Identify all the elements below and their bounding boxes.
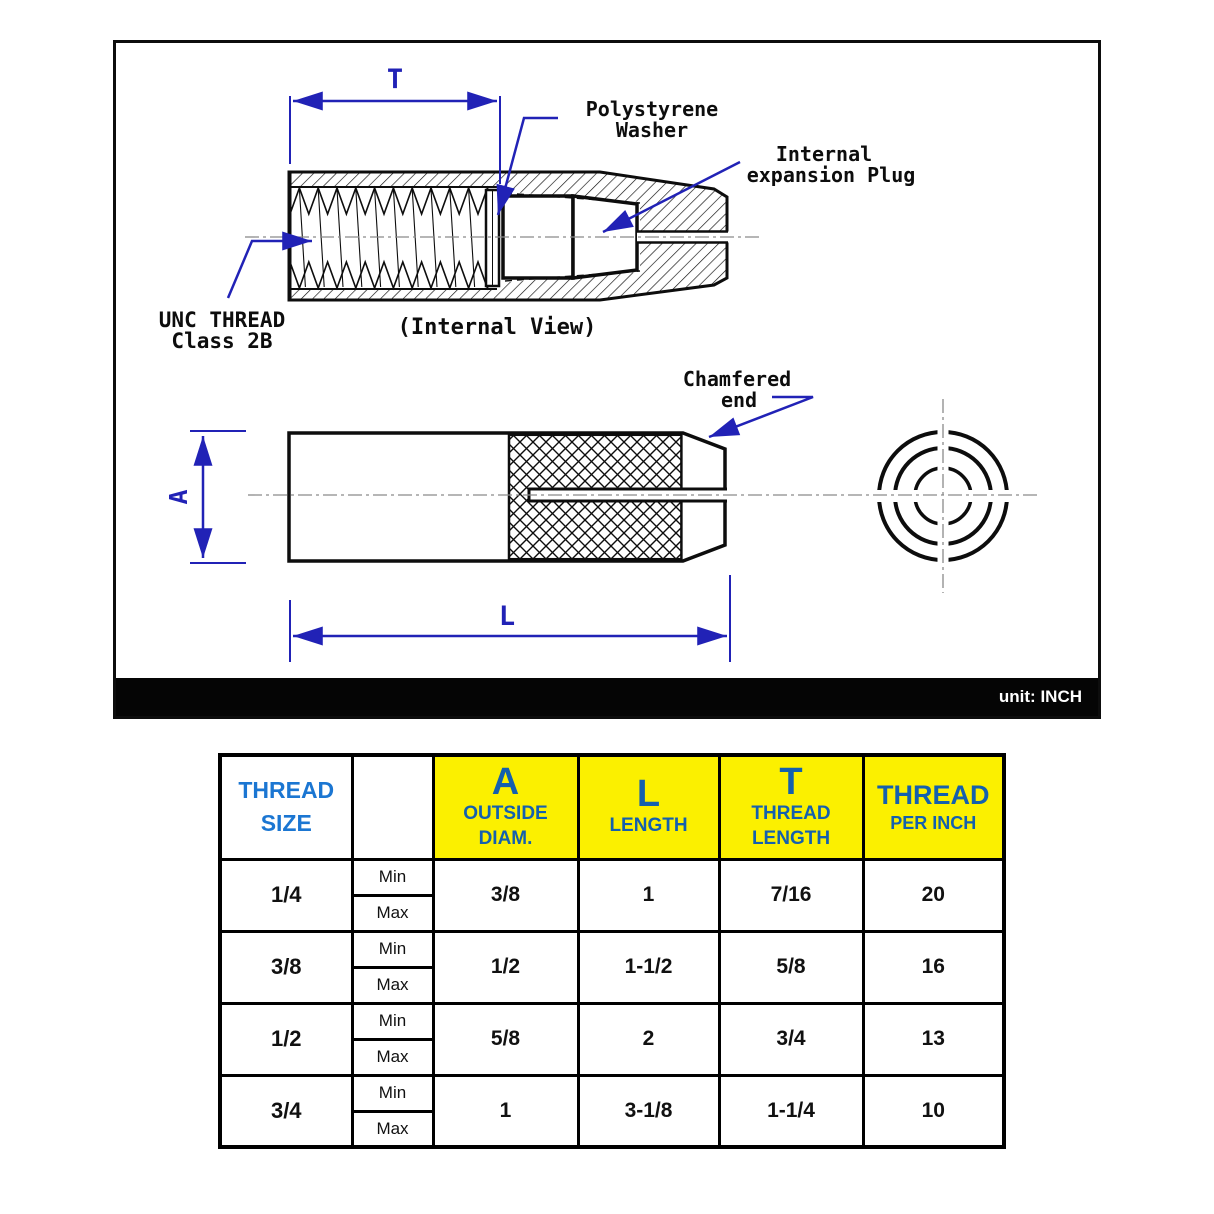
cell-tpi-0: 20 — [863, 859, 1004, 931]
header-tpi-line2: PER INCH — [865, 812, 1003, 835]
cell-min-3: Min — [352, 1075, 433, 1111]
cell-min-0: Min — [352, 859, 433, 895]
cell-l-1: 1-1/2 — [578, 931, 719, 1003]
cell-tpi-1: 16 — [863, 931, 1004, 1003]
washer-label-line2: Washer — [616, 118, 688, 142]
cell-a-2: 5/8 — [433, 1003, 578, 1075]
cell-size-3: 3/4 — [220, 1075, 352, 1147]
unit-label: unit: INCH — [999, 687, 1098, 707]
cell-l-0: 1 — [578, 859, 719, 931]
page: T Polystyrene Washer Internal expansion … — [0, 0, 1214, 1214]
unc-thread-label-line2: Class 2B — [171, 329, 272, 353]
header-t-letter: T — [721, 763, 862, 801]
header-tpi-line1: THREAD — [865, 779, 1003, 811]
cell-max-3: Max — [352, 1111, 433, 1147]
header-a-sub2: DIAM. — [435, 826, 577, 852]
header-t-sub1: THREAD — [721, 801, 862, 827]
header-thread-size-line1: THREAD — [222, 774, 351, 807]
cell-l-2: 2 — [578, 1003, 719, 1075]
header-thread-size: THREAD SIZE — [220, 755, 352, 859]
header-a-letter: A — [435, 763, 577, 801]
cell-t-1: 5/8 — [719, 931, 863, 1003]
cell-l-3: 3-1/8 — [578, 1075, 719, 1147]
table-row: 1/4 Min 3/8 1 7/16 20 — [220, 859, 1004, 895]
header-l-sub: LENGTH — [580, 813, 718, 839]
header-l-length: L LENGTH — [578, 755, 719, 859]
cell-a-3: 1 — [433, 1075, 578, 1147]
cell-tpi-3: 10 — [863, 1075, 1004, 1147]
cell-size-1: 3/8 — [220, 931, 352, 1003]
header-l-letter: L — [580, 775, 718, 813]
cell-min-1: Min — [352, 931, 433, 967]
internal-view-caption: (Internal View) — [398, 315, 597, 340]
cell-t-0: 7/16 — [719, 859, 863, 931]
end-view — [873, 425, 1013, 567]
unit-bar: unit: INCH — [116, 678, 1098, 716]
side-view — [289, 433, 727, 561]
header-t-sub2: LENGTH — [721, 826, 862, 852]
plug-label-line2: expansion Plug — [747, 163, 916, 187]
spec-table: THREAD SIZE A OUTSIDE DIAM. L LENGTH T T… — [218, 753, 1006, 1149]
cell-t-3: 1-1/4 — [719, 1075, 863, 1147]
header-t-thread-length: T THREAD LENGTH — [719, 755, 863, 859]
cell-tpi-2: 13 — [863, 1003, 1004, 1075]
header-a-sub1: OUTSIDE — [435, 801, 577, 827]
chamfer-label-line2: end — [721, 388, 757, 412]
cell-min-2: Min — [352, 1003, 433, 1039]
dim-label-t: T — [387, 64, 403, 95]
cell-size-2: 1/2 — [220, 1003, 352, 1075]
header-thread-size-line2: SIZE — [222, 807, 351, 840]
cell-max-1: Max — [352, 967, 433, 1003]
internal-section-view — [289, 172, 730, 300]
cell-max-0: Max — [352, 895, 433, 931]
table-row: 3/8 Min 1/2 1-1/2 5/8 16 — [220, 931, 1004, 967]
header-minmax-blank — [352, 755, 433, 859]
cell-size-0: 1/4 — [220, 859, 352, 931]
drawing-panel: T Polystyrene Washer Internal expansion … — [113, 40, 1101, 719]
cell-max-2: Max — [352, 1039, 433, 1075]
table-header-row: THREAD SIZE A OUTSIDE DIAM. L LENGTH T T… — [220, 755, 1004, 859]
header-thread-per-inch: THREAD PER INCH — [863, 755, 1004, 859]
dim-label-a: A — [164, 489, 193, 504]
anchor-technical-drawing: T Polystyrene Washer Internal expansion … — [116, 43, 1098, 678]
cell-t-2: 3/4 — [719, 1003, 863, 1075]
header-a-outside-diam: A OUTSIDE DIAM. — [433, 755, 578, 859]
table-row: 3/4 Min 1 3-1/8 1-1/4 10 — [220, 1075, 1004, 1111]
cell-a-0: 3/8 — [433, 859, 578, 931]
table-row: 1/2 Min 5/8 2 3/4 13 — [220, 1003, 1004, 1039]
cell-a-1: 1/2 — [433, 931, 578, 1003]
dim-label-l: L — [499, 601, 515, 632]
